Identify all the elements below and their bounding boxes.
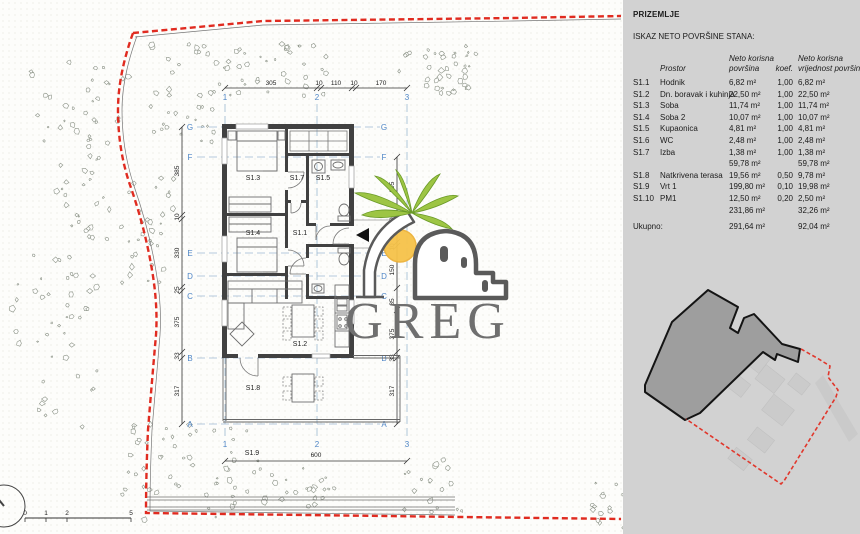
room-area: 11,74 m² xyxy=(729,100,775,112)
entrance-arrow-icon xyxy=(356,228,369,242)
grid-col-label: 2 xyxy=(315,440,320,449)
subtotal-value: 59,78 m² xyxy=(798,158,858,170)
dim-label: 110 xyxy=(331,80,342,87)
subtotal-row: 59,78 m²59,78 m² xyxy=(633,158,858,170)
room-koef: 1,00 xyxy=(775,112,798,124)
room-area: 10,07 m² xyxy=(729,112,775,124)
grid-row-label: E xyxy=(187,249,192,258)
total-row: Ukupno:291,64 m²92,04 m² xyxy=(633,221,858,233)
room-koef xyxy=(775,205,798,217)
room-label-s1-7: S1.7 xyxy=(290,175,305,182)
room-code: S1.6 xyxy=(633,135,660,147)
dim-label: 317 xyxy=(174,385,181,396)
table-row: S1.5Kupaonica4,81 m²1,004,81 m² xyxy=(633,123,858,135)
dim-label: 25 xyxy=(174,286,181,294)
total-label: Ukupno: xyxy=(633,221,660,233)
room-code xyxy=(633,205,660,217)
room-name: Natkrivena terasa xyxy=(660,170,729,182)
table-header: Prostor Neto korisnapovršina koef. Neto … xyxy=(633,54,858,74)
header-value: Neto korisnavrijednost površina xyxy=(798,54,860,74)
room-name xyxy=(660,221,729,233)
room-area: 19,56 m² xyxy=(729,170,775,182)
north-indicator-icon xyxy=(0,484,25,527)
grid-col-label: 3 xyxy=(405,93,410,102)
grid-row-label: B xyxy=(187,354,192,363)
room-value: 2,50 m² xyxy=(798,193,858,205)
table-row: S1.1Hodnik6,82 m²1,006,82 m² xyxy=(633,77,858,89)
table-row: S1.2Dn. boravak i kuhinja22,50 m²1,0022,… xyxy=(633,89,858,101)
table-row: S1.3Soba11,74 m²1,0011,74 m² xyxy=(633,100,858,112)
room-value: 9,78 m² xyxy=(798,170,858,182)
agency-logo: GREG xyxy=(345,170,511,350)
scale-label: 1 xyxy=(44,510,48,517)
road-band xyxy=(815,375,858,442)
room-area: 22,50 m² xyxy=(729,89,775,101)
room-code: S1.2 xyxy=(633,89,660,101)
room-area: 1,38 m² xyxy=(729,147,775,159)
dim-label: 10 xyxy=(350,80,358,87)
apartment-walls xyxy=(222,124,354,358)
room-code: S1.5 xyxy=(633,123,660,135)
room-code: S1.7 xyxy=(633,147,660,159)
room-area: 199,80 m² xyxy=(729,181,775,193)
closet-strip xyxy=(290,131,347,151)
dim-label: 33 xyxy=(174,352,181,360)
room-name: Izba xyxy=(660,147,729,159)
grid-col-label: 2 xyxy=(315,93,320,102)
header-area: Neto korisnapovršina xyxy=(729,54,775,74)
grid-col-label: 1 xyxy=(223,440,228,449)
room-code: S1.4 xyxy=(633,112,660,124)
room-name: Soba xyxy=(660,100,729,112)
room-area: 12,50 m² xyxy=(729,193,775,205)
room-code: S1.1 xyxy=(633,77,660,89)
room-koef: 1,00 xyxy=(775,77,798,89)
table-row: S1.9Vrt 1199,80 m²0,1019,98 m² xyxy=(633,181,858,193)
room-code xyxy=(633,158,660,170)
room-label-s1-2: S1.2 xyxy=(293,341,308,348)
header-code-col xyxy=(633,54,660,74)
dim-label: 305 xyxy=(266,80,277,87)
floorplan-sheet: { "panel": { "floor_title": "PRIZEMLJE",… xyxy=(0,0,860,534)
room-name: Soba 2 xyxy=(660,112,729,124)
room-koef xyxy=(775,158,798,170)
logo-wordmark: GREG xyxy=(345,293,511,350)
room-value: 22,50 m² xyxy=(798,89,858,101)
grid-row-label: F xyxy=(188,153,193,162)
dim-label: 170 xyxy=(376,80,387,87)
table-row: S1.6WC2,48 m²1,002,48 m² xyxy=(633,135,858,147)
room-value: 4,81 m² xyxy=(798,123,858,135)
area-table: Prostor Neto korisnapovršina koef. Neto … xyxy=(633,54,858,233)
subtotal-row: 231,86 m²32,26 m² xyxy=(633,205,858,217)
room-area: 2,48 m² xyxy=(729,135,775,147)
dim-label: 317 xyxy=(389,385,396,396)
grid-row-label: C xyxy=(187,292,193,301)
dim-label: 385 xyxy=(174,165,181,176)
subtotal-area: 59,78 m² xyxy=(729,158,775,170)
floor-title: PRIZEMLJE xyxy=(633,10,680,19)
grid-row-label: G xyxy=(381,123,387,132)
room-label-s1-4: S1.4 xyxy=(246,230,261,237)
grid-row-label: G xyxy=(187,123,193,132)
room-name: Dn. boravak i kuhinja xyxy=(660,89,729,101)
grid-row-label: F xyxy=(382,153,387,162)
room-value: 10,07 m² xyxy=(798,112,858,124)
room-koef xyxy=(775,221,798,233)
subtotal-area: 231,86 m² xyxy=(729,205,775,217)
grid-row-label: D xyxy=(187,272,193,281)
room-label-s1-9: S1.9 xyxy=(245,450,260,457)
room-koef: 1,00 xyxy=(775,89,798,101)
room-koef: 1,00 xyxy=(775,135,798,147)
room-name: Vrt 1 xyxy=(660,181,729,193)
scale-label: 5 xyxy=(129,510,133,517)
site-location-map xyxy=(640,282,860,534)
room-code: S1.3 xyxy=(633,100,660,112)
scale-bar: 0 1 2 5 xyxy=(23,510,133,522)
room-koef: 1,00 xyxy=(775,100,798,112)
dim-label: 10 xyxy=(315,80,323,87)
room-koef: 0,20 xyxy=(775,193,798,205)
grid-row-label: A xyxy=(187,420,193,429)
scale-label: 2 xyxy=(65,510,69,517)
room-code: S1.8 xyxy=(633,170,660,182)
room-area: 6,82 m² xyxy=(729,77,775,89)
room-value: 19,98 m² xyxy=(798,181,858,193)
room-label-s1-5: S1.5 xyxy=(316,175,331,182)
site-plan-drawing: 1 2 3 1 2 3 G F E D C B A G F E D C B A xyxy=(0,0,623,534)
room-value: 11,74 m² xyxy=(798,100,858,112)
dim-label: 10 xyxy=(174,213,181,221)
header-koef: koef. xyxy=(775,54,798,74)
room-name: Hodnik xyxy=(660,77,729,89)
table-row: S1.4Soba 210,07 m²1,0010,07 m² xyxy=(633,112,858,124)
grid-col-label: 1 xyxy=(223,93,228,102)
dim-label: 375 xyxy=(174,316,181,327)
total-area: 291,64 m² xyxy=(729,221,775,233)
room-name: Kupaonica xyxy=(660,123,729,135)
room-value: 2,48 m² xyxy=(798,135,858,147)
room-name: PM1 xyxy=(660,193,729,205)
room-label-s1-3: S1.3 xyxy=(246,175,261,182)
room-name: WC xyxy=(660,135,729,147)
dim-label: 150 xyxy=(389,264,396,275)
grid-row-label: D xyxy=(381,272,387,281)
room-name xyxy=(660,205,729,217)
dim-label: 330 xyxy=(174,247,181,258)
total-value: 92,04 m² xyxy=(798,221,858,233)
room-label-s1-1: S1.1 xyxy=(293,230,308,237)
dim-label: 600 xyxy=(311,452,322,459)
subtotal-value: 32,26 m² xyxy=(798,205,858,217)
room-koef: 0,50 xyxy=(775,170,798,182)
area-summary-panel: PRIZEMLJE ISKAZ NETO POVRŠINE STANA: Pro… xyxy=(623,0,860,534)
room-code: S1.10 xyxy=(633,193,660,205)
header-prostor: Prostor xyxy=(660,54,729,74)
room-koef: 0,10 xyxy=(775,181,798,193)
room-koef: 1,00 xyxy=(775,123,798,135)
room-value: 6,82 m² xyxy=(798,77,858,89)
table-row: S1.7Izba1,38 m²1,001,38 m² xyxy=(633,147,858,159)
room-label-s1-8: S1.8 xyxy=(246,385,261,392)
room-code: S1.9 xyxy=(633,181,660,193)
room-name xyxy=(660,158,729,170)
room-value: 1,38 m² xyxy=(798,147,858,159)
table-row: S1.10PM112,50 m²0,202,50 m² xyxy=(633,193,858,205)
room-koef: 1,00 xyxy=(775,147,798,159)
grid-row-label: A xyxy=(381,420,387,429)
table-subtitle: ISKAZ NETO POVRŠINE STANA: xyxy=(633,32,755,41)
plan-canvas: 1 2 3 1 2 3 G F E D C B A G F E D C B A xyxy=(0,0,623,534)
table-row: S1.8Natkrivena terasa19,56 m²0,509,78 m² xyxy=(633,170,858,182)
room-area: 4,81 m² xyxy=(729,123,775,135)
garden-retaining-walls xyxy=(147,497,455,510)
logo-building-icon xyxy=(415,231,506,298)
grid-col-label: 3 xyxy=(405,440,410,449)
